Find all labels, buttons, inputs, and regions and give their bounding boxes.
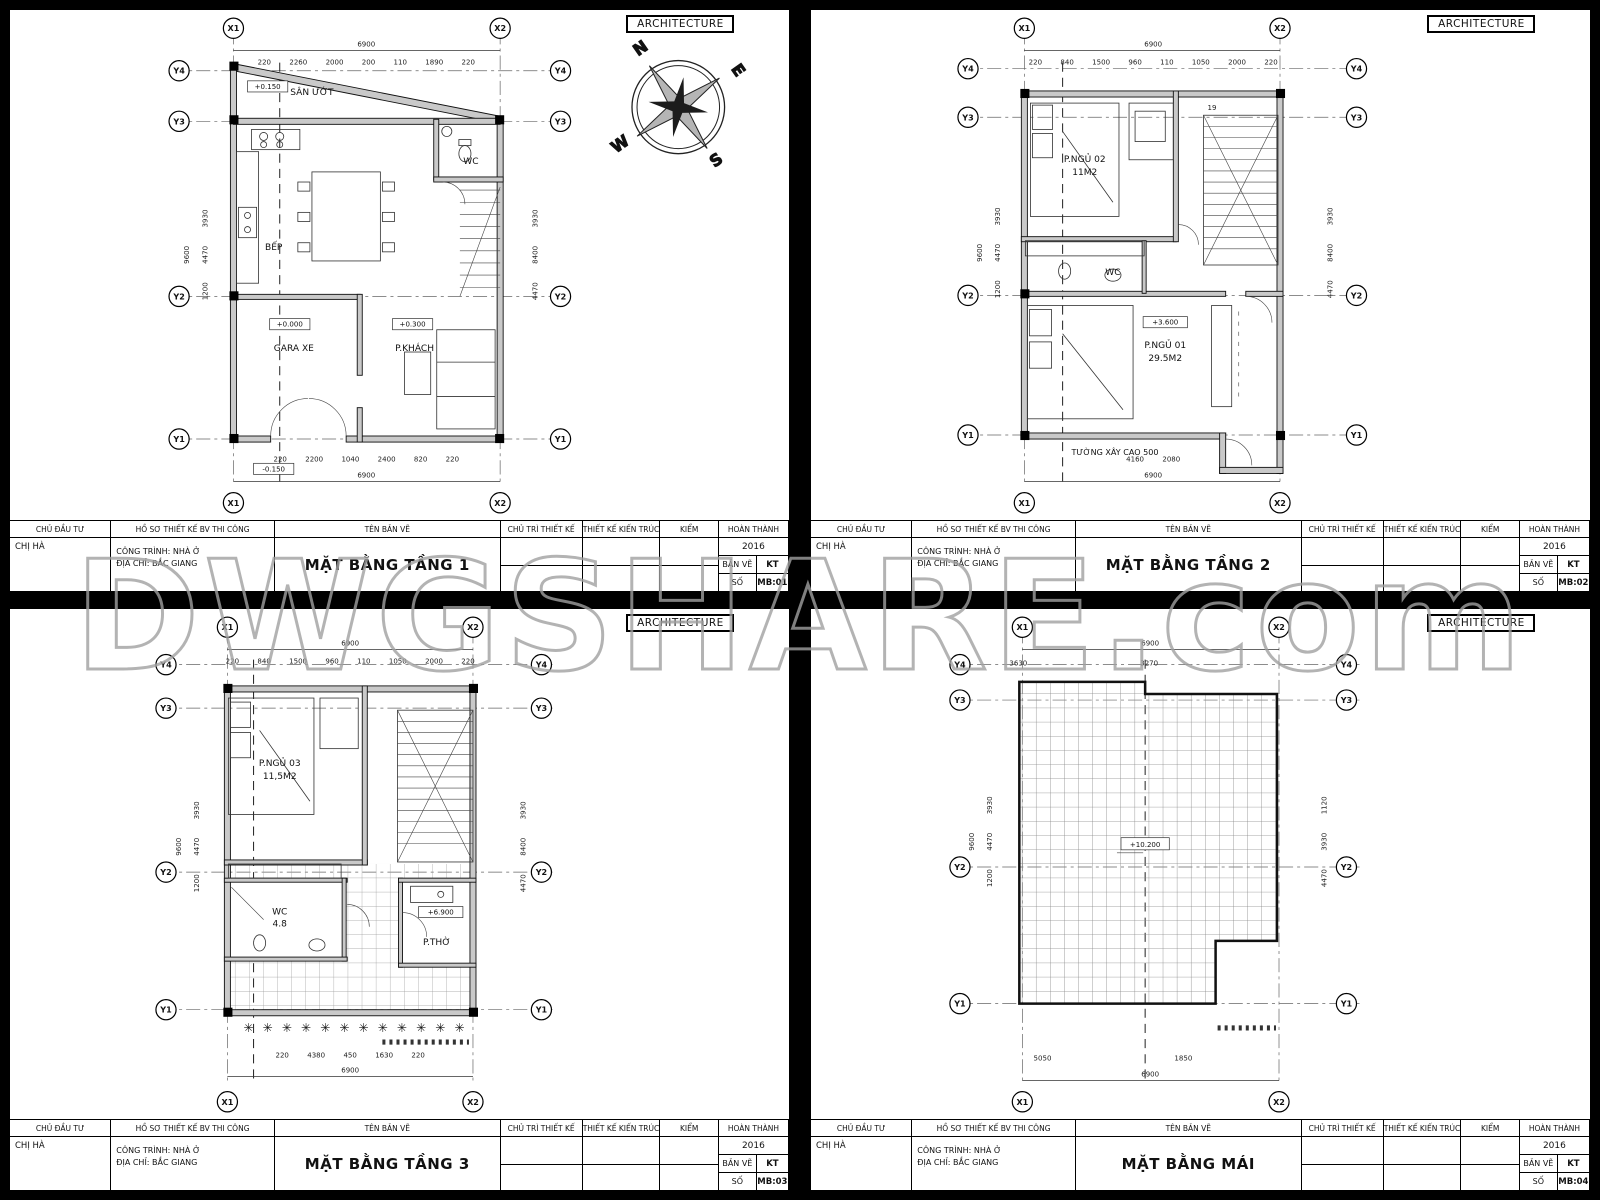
svg-text:3630 3270: 3630 3270 [1009, 659, 1158, 668]
svg-text:Y3: Y3 [159, 704, 171, 713]
svg-text:1200 4470 3930: 1200 4470 3930 [192, 801, 201, 892]
wash-basin [442, 126, 452, 136]
svg-text:Y4: Y4 [953, 661, 966, 670]
drawing-title: MẶT BẰNG TẦNG 3 [275, 1137, 501, 1190]
svg-text:X1: X1 [221, 1098, 233, 1107]
svg-text:6900: 6900 [1141, 638, 1159, 647]
svg-text:11,5M2: 11,5M2 [263, 772, 297, 782]
sheet-floor-2: ARCHITECTURE 6900 220 840 1500 960 110 1… [809, 8, 1592, 593]
drawing-title: MẶT BẰNG MÁI [1076, 1137, 1302, 1190]
svg-text:29.5M2: 29.5M2 [1148, 354, 1182, 364]
svg-text:1200 4470 3930: 1200 4470 3930 [200, 209, 209, 300]
client: CHỊ HÀ [10, 538, 111, 591]
svg-text:Y3: Y3 [961, 113, 973, 122]
sheet-info: 2016 BẢN VẼKT SỐMB:01 [719, 538, 789, 591]
svg-text:4.8: 4.8 [273, 920, 288, 930]
sheet-info: 2016 BẢN VẼKT SỐMB:02 [1520, 538, 1590, 591]
svg-text:220 2200 1040 2400 820 220: 220 2200 1040 2400 820 220 [273, 454, 459, 463]
svg-text:Y3: Y3 [1340, 696, 1352, 705]
compass-n: N [629, 36, 651, 59]
svg-text:X2: X2 [494, 499, 506, 508]
svg-text:Y4: Y4 [1340, 661, 1353, 670]
compass-s: S [706, 149, 726, 171]
sheet-floor-1: ARCHITECTURE 6900 220 2260 2000 200 110 … [8, 8, 791, 593]
room-ngu-03: P.NGỦ 03 [259, 757, 301, 769]
stair: 19 [1204, 103, 1278, 265]
room-gara: GARA XE [274, 344, 314, 354]
svg-text:Y3: Y3 [953, 696, 965, 705]
sheet-floor-3: ARCHITECTURE 6900 220 840 1500 960 110 1… [8, 607, 791, 1192]
svg-text:4470 3930 1120: 4470 3930 1120 [1319, 796, 1328, 887]
sheet-info: 2016 BẢN VẼKT SỐMB:03 [719, 1137, 789, 1190]
svg-text:Y4: Y4 [1350, 65, 1363, 74]
title-block: CHỦ ĐẦU TƯHỒ SƠ THIẾT KẾ BV THI CÔNG TÊN… [811, 1119, 1590, 1190]
svg-text:Y2: Y2 [1350, 291, 1362, 300]
svg-text:6900: 6900 [357, 39, 375, 48]
room-wc: WC [272, 908, 287, 918]
svg-text:Y4: Y4 [159, 661, 172, 670]
stair [460, 187, 500, 296]
svg-text:Y4: Y4 [535, 661, 548, 670]
svg-text:Y1: Y1 [172, 435, 185, 444]
walls [1020, 89, 1285, 474]
toilet [1059, 263, 1071, 279]
svg-text:Y3: Y3 [172, 117, 184, 126]
svg-text:Y4: Y4 [961, 65, 974, 74]
room-tho: P.THỜ [423, 936, 451, 948]
svg-text:19: 19 [1208, 103, 1217, 112]
title-block: CHỦ ĐẦU TƯHỒ SƠ THIẾT KẾ BV THI CÔNG TÊN… [811, 520, 1590, 591]
svg-text:+3.600: +3.600 [1152, 318, 1179, 327]
svg-text:Y4: Y4 [554, 67, 567, 76]
svg-text:Y2: Y2 [961, 291, 973, 300]
svg-text:6900: 6900 [1141, 1069, 1159, 1078]
svg-text:Y2: Y2 [554, 292, 566, 301]
sheet-set: ARCHITECTURE 6900 220 2260 2000 200 110 … [0, 0, 1600, 1200]
svg-text:Y1: Y1 [1350, 431, 1363, 440]
room-wc: WC [463, 157, 478, 167]
room-ngu-01: P.NGỦ 01 [1144, 339, 1186, 351]
svg-text:4470 8400 3930: 4470 8400 3930 [530, 209, 539, 300]
svg-text:Y2: Y2 [953, 863, 965, 872]
svg-text:X1: X1 [1016, 1098, 1028, 1107]
svg-text:X1: X1 [228, 499, 240, 508]
bed [228, 698, 314, 814]
svg-text:Y1: Y1 [159, 1006, 172, 1015]
architecture-label: ARCHITECTURE [637, 18, 724, 30]
floor-1-drawing: 6900 220 2260 2000 200 110 1890 220 220 … [10, 10, 789, 521]
room-ngu-02: P.NGỦ 02 [1064, 153, 1106, 165]
garage-door-arcs [271, 399, 346, 436]
svg-text:-0.150: -0.150 [262, 464, 285, 473]
svg-text:9600: 9600 [967, 832, 976, 850]
sheet-number: MB:03 [757, 1173, 788, 1190]
compass-rose-icon: N E W S [607, 36, 749, 171]
client: CHỊ HÀ [811, 538, 912, 591]
svg-text:X2: X2 [1273, 623, 1285, 632]
svg-text:+0.300: +0.300 [400, 320, 427, 329]
floor-2-drawing: 6900 220 840 1500 960 110 1050 2000 220 … [811, 10, 1590, 521]
svg-text:+0.000: +0.000 [277, 320, 304, 329]
svg-text:Y2: Y2 [535, 868, 547, 877]
room-khach: P.KHÁCH [395, 342, 434, 354]
sheet-number: MB:04 [1558, 1173, 1589, 1190]
svg-text:Y1: Y1 [1340, 1000, 1353, 1009]
svg-text:220 840 1500 960 110 1050 2000: 220 840 1500 960 110 1050 2000 220 [1029, 58, 1279, 67]
project-info: CÔNG TRÌNH: NHÀ ỞĐỊA CHỈ: BẮC GIANG [912, 538, 1076, 591]
svg-text:Y1: Y1 [961, 431, 974, 440]
architecture-tab: ARCHITECTURE [626, 15, 734, 33]
sheet-roof: ARCHITECTURE 6900 3630 3270 5050 1850 69… [809, 607, 1592, 1192]
floor-3-drawing: 6900 220 840 1500 960 110 1050 2000 220 … [10, 609, 789, 1120]
compass-e: E [727, 60, 749, 80]
drawing-title: MẶT BẰNG TẦNG 1 [275, 538, 501, 591]
room-labels: P.NGỦ 02 11M2 WC P.NGỦ 01 29.5M2 +3.600 … [1064, 153, 1188, 457]
svg-text:X2: X2 [1274, 24, 1286, 33]
architecture-tab: ARCHITECTURE [1427, 15, 1535, 33]
svg-text:X1: X1 [1018, 24, 1030, 33]
svg-text:X1: X1 [228, 24, 240, 33]
svg-text:Y1: Y1 [554, 435, 567, 444]
shelf [1212, 305, 1232, 406]
svg-text:1200 4470 3930: 1200 4470 3930 [993, 207, 1002, 298]
svg-text:5050 1850: 5050 1850 [1034, 1053, 1193, 1062]
wall-note: TƯỜNG XÂY CAO 500 [1070, 446, 1158, 457]
svg-text:X1: X1 [1018, 499, 1030, 508]
svg-text:X2: X2 [467, 623, 479, 632]
svg-text:Y2: Y2 [159, 868, 171, 877]
svg-text:6900: 6900 [1144, 470, 1162, 479]
svg-text:1200 4470 3930: 1200 4470 3930 [985, 796, 994, 887]
project-info: CÔNG TRÌNH: NHÀ ỞĐỊA CHỈ: BẮC GIANG [111, 538, 275, 591]
grid-lines [161, 629, 554, 1084]
roof-drawing: 6900 3630 3270 5050 1850 6900 9600 1200 … [811, 609, 1590, 1120]
project-info: CÔNG TRÌNH: NHÀ ỞĐỊA CHỈ: BẮC GIANG [912, 1137, 1076, 1190]
wardrobe [1025, 241, 1144, 256]
client: CHỊ HÀ [10, 1137, 111, 1190]
svg-text:Y2: Y2 [172, 292, 184, 301]
svg-text:6900: 6900 [341, 1065, 359, 1074]
title-block: CHỦ ĐẦU TƯHỒ SƠ THIẾT KẾ BV THI CÔNG TÊN… [10, 1119, 789, 1190]
sheet-number: MB:01 [757, 574, 788, 591]
svg-text:+0.150: +0.150 [255, 82, 282, 91]
svg-text:Y3: Y3 [535, 704, 547, 713]
svg-text:9600: 9600 [182, 245, 191, 263]
sheet-info: 2016 BẢN VẼKT SỐMB:04 [1520, 1137, 1590, 1190]
svg-text:220 4380 450 1630 220: 220 4380 450 1630 220 [275, 1050, 425, 1059]
svg-text:X2: X2 [494, 24, 506, 33]
svg-text:X1: X1 [221, 623, 233, 632]
drawing-title: MẶT BẰNG TẦNG 2 [1076, 538, 1302, 591]
svg-text:X2: X2 [467, 1098, 479, 1107]
plants-row: ✳✳✳✳✳✳✳✳✳✳✳✳ [243, 1021, 473, 1035]
sofa [437, 330, 495, 429]
title-block: CHỦ ĐẦU TƯHỒ SƠ THIẾT KẾ BV THI CÔNG TÊN… [10, 520, 789, 591]
svg-text:4470 8400 3930: 4470 8400 3930 [518, 801, 527, 892]
svg-text:X2: X2 [1274, 499, 1286, 508]
svg-text:Y2: Y2 [1340, 863, 1352, 872]
sheet-number: MB:02 [1558, 574, 1589, 591]
room-bep: BẾP [265, 241, 283, 253]
svg-text:6900: 6900 [1144, 39, 1162, 48]
svg-text:9600: 9600 [174, 837, 183, 855]
architecture-tab: ARCHITECTURE [1427, 614, 1535, 632]
compass-w: W [607, 131, 633, 157]
svg-text:X1: X1 [1016, 623, 1028, 632]
svg-text:Y4: Y4 [172, 67, 185, 76]
svg-text:Y3: Y3 [554, 117, 566, 126]
dining-table [312, 172, 380, 261]
svg-text:6900: 6900 [357, 470, 375, 479]
stair [397, 710, 472, 862]
svg-text:220 840 1500 960 110 1050 2000: 220 840 1500 960 110 1050 2000 220 [226, 657, 476, 666]
project-info: CÔNG TRÌNH: NHÀ ỞĐỊA CHỈ: BẮC GIANG [111, 1137, 275, 1190]
architecture-tab: ARCHITECTURE [626, 614, 734, 632]
svg-text:Y1: Y1 [953, 1000, 966, 1009]
svg-text:+10.200: +10.200 [1130, 840, 1161, 849]
svg-text:11M2: 11M2 [1072, 168, 1097, 178]
room-wc: WC [1105, 268, 1120, 278]
furniture [236, 126, 495, 436]
svg-text:X2: X2 [1273, 1098, 1285, 1107]
room-san-uot: SÂN ƯỚT [290, 86, 334, 98]
svg-text:+6.900: +6.900 [428, 908, 455, 917]
client: CHỊ HÀ [811, 1137, 912, 1190]
svg-text:Y3: Y3 [1350, 113, 1362, 122]
svg-text:4470 8400 3930: 4470 8400 3930 [1325, 207, 1334, 298]
svg-text:9600: 9600 [975, 243, 984, 261]
svg-text:220 2260 2000 200 110 1890 220: 220 2260 2000 200 110 1890 220 [258, 58, 476, 67]
svg-text:6900: 6900 [341, 638, 359, 647]
svg-text:Y1: Y1 [535, 1006, 548, 1015]
